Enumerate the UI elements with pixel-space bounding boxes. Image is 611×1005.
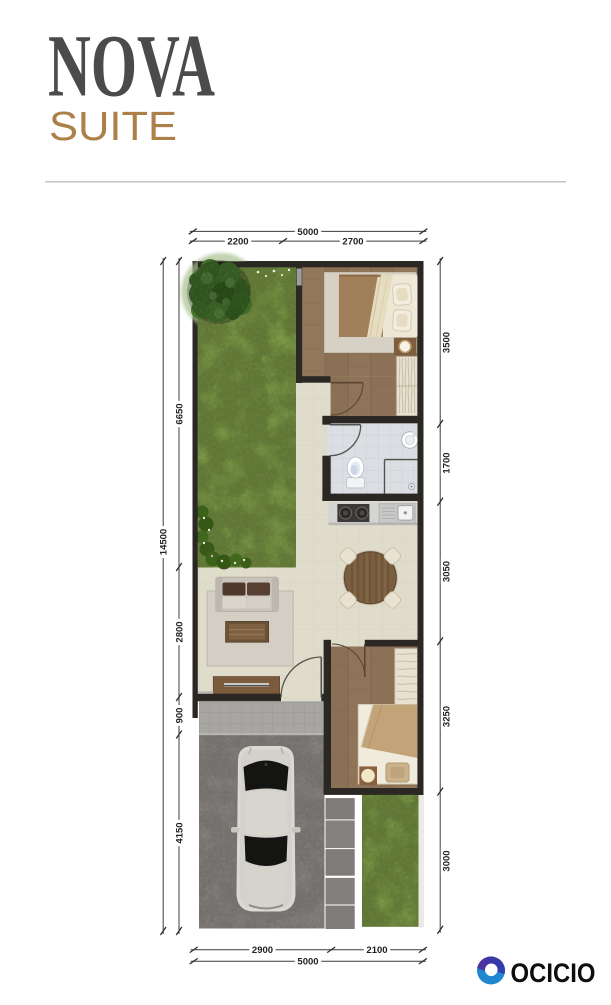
svg-text:2800: 2800	[174, 621, 185, 642]
svg-text:1700: 1700	[441, 452, 452, 473]
svg-text:3000: 3000	[441, 850, 452, 871]
svg-text:5000: 5000	[297, 227, 318, 238]
svg-text:3500: 3500	[441, 332, 452, 353]
svg-text:2100: 2100	[366, 945, 387, 956]
svg-text:14500: 14500	[159, 529, 170, 555]
svg-text:6650: 6650	[174, 403, 185, 424]
svg-text:3250: 3250	[441, 706, 452, 727]
svg-text:2700: 2700	[342, 237, 363, 248]
svg-text:2200: 2200	[227, 237, 248, 248]
svg-text:4150: 4150	[174, 822, 185, 843]
svg-text:SUITE: SUITE	[49, 103, 177, 149]
svg-text:3050: 3050	[441, 561, 452, 582]
svg-text:900: 900	[174, 708, 185, 724]
svg-text:2900: 2900	[252, 945, 273, 956]
svg-text:OCICIO: OCICIO	[511, 958, 596, 988]
svg-text:NOVA: NOVA	[48, 18, 215, 116]
svg-text:5000: 5000	[297, 957, 318, 968]
